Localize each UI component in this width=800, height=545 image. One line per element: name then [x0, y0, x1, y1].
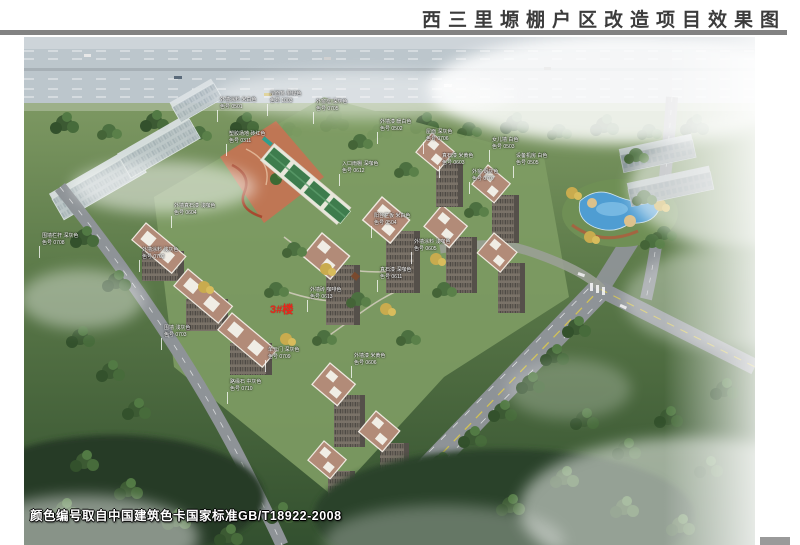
color-annotation: 外墙真石漆 浅咖色色号 0604	[174, 203, 215, 216]
color-annotation: 外墙涂料 浅灰色色号 0702	[142, 247, 178, 260]
color-annotation: 屋面瓦 果绿色色号 1003	[270, 91, 301, 104]
color-annotation: 单元门 深灰色色号 0709	[268, 347, 299, 360]
color-annotation: 外窗 烟灰色色号 0707	[472, 169, 498, 182]
color-annotation: 真石漆 深咖色色号 0611	[380, 267, 411, 280]
color-annotation: 路缘石 中灰色色号 0710	[230, 379, 261, 392]
color-annotation: 外墙涂料 米白色色号 0501	[220, 97, 256, 110]
color-annotation: 入口雨棚 深咖色色号 0612	[342, 161, 378, 174]
color-annotation: 外墙漆 暖白色色号 0502	[380, 119, 411, 132]
color-annotation: 外墙砖 咖啡色色号 0613	[310, 287, 341, 300]
annotation-layer: 外墙涂料 米白色色号 0501屋面瓦 果绿色色号 1003外窗框 深灰色色号 0…	[24, 37, 755, 545]
sheet: 西三里塬棚户区改造项目效果图	[0, 0, 800, 545]
color-annotation: 围墙 浅灰色色号 0703	[164, 325, 190, 338]
corner-mark	[760, 537, 790, 545]
color-annotation: 围墙栏杆 深灰色色号 0708	[42, 233, 78, 246]
color-annotation: 外窗框 深灰色色号 0705	[316, 99, 347, 112]
color-annotation: 阳台栏板 米白色色号 0504	[374, 213, 410, 226]
page-title: 西三里塬棚户区改造项目效果图	[422, 5, 786, 32]
aerial-render: 外墙涂料 米白色色号 0501屋面瓦 果绿色色号 1003外窗框 深灰色色号 0…	[24, 37, 755, 545]
color-annotation: 外墙涂料 浅咖色色号 0605	[414, 239, 450, 252]
color-annotation: 外墙漆 米黄色色号 0606	[354, 353, 385, 366]
color-annotation: 屋面 深灰色色号 0706	[426, 129, 452, 142]
title-divider	[0, 30, 787, 35]
color-standard-note: 颜色编号取自中国建筑色卡国家标准GB/T18922-2008	[30, 505, 342, 524]
color-annotation: 真石漆 米黄色色号 0603	[442, 153, 473, 166]
color-annotation: 塑胶场地 砖红色色号 0311	[229, 131, 265, 144]
building-3-label: 3#楼	[270, 301, 293, 317]
color-annotation: 女儿墙 白色色号 0503	[492, 137, 518, 150]
color-annotation: 设备机房 白色色号 0505	[516, 153, 547, 166]
